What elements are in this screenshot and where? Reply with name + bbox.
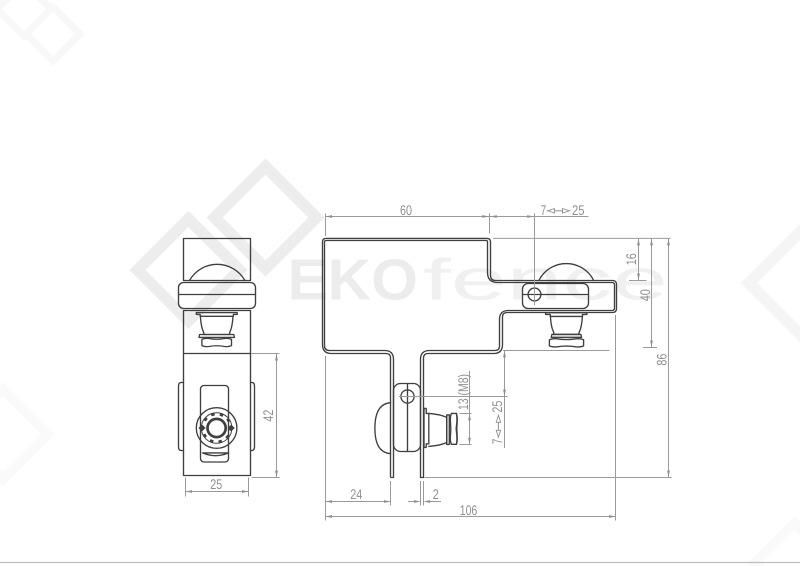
svg-text:86: 86 — [654, 353, 670, 365]
svg-text:25: 25 — [210, 476, 222, 492]
svg-text:2: 2 — [433, 486, 439, 502]
svg-text:EKO: EKO — [288, 248, 419, 313]
svg-text:25: 25 — [572, 202, 585, 218]
svg-text:25: 25 — [489, 400, 505, 412]
svg-text:24: 24 — [350, 486, 362, 502]
svg-text:42: 42 — [260, 409, 276, 421]
svg-text:7: 7 — [489, 439, 505, 445]
svg-text:60: 60 — [400, 202, 412, 218]
svg-text:40: 40 — [637, 289, 653, 301]
svg-text:13 (M8): 13 (M8) — [455, 374, 471, 410]
svg-text:106: 106 — [460, 502, 478, 518]
svg-text:16: 16 — [623, 253, 639, 265]
svg-text:7: 7 — [541, 202, 547, 218]
